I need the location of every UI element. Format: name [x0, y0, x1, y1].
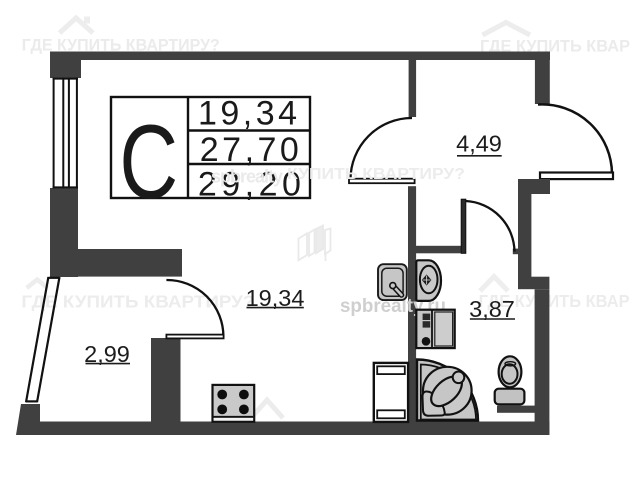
- svg-text:spbrealty: spbrealty: [211, 167, 283, 187]
- svg-text:КУПИТЬ КВАРТИРУ?: КУПИТЬ КВАРТИРУ?: [287, 166, 465, 183]
- svg-text:4,49: 4,49: [456, 131, 502, 157]
- svg-text:19,34: 19,34: [198, 95, 297, 133]
- svg-text:C: C: [119, 103, 178, 220]
- svg-text:27,70: 27,70: [200, 131, 299, 169]
- svg-text:3,87: 3,87: [469, 296, 515, 322]
